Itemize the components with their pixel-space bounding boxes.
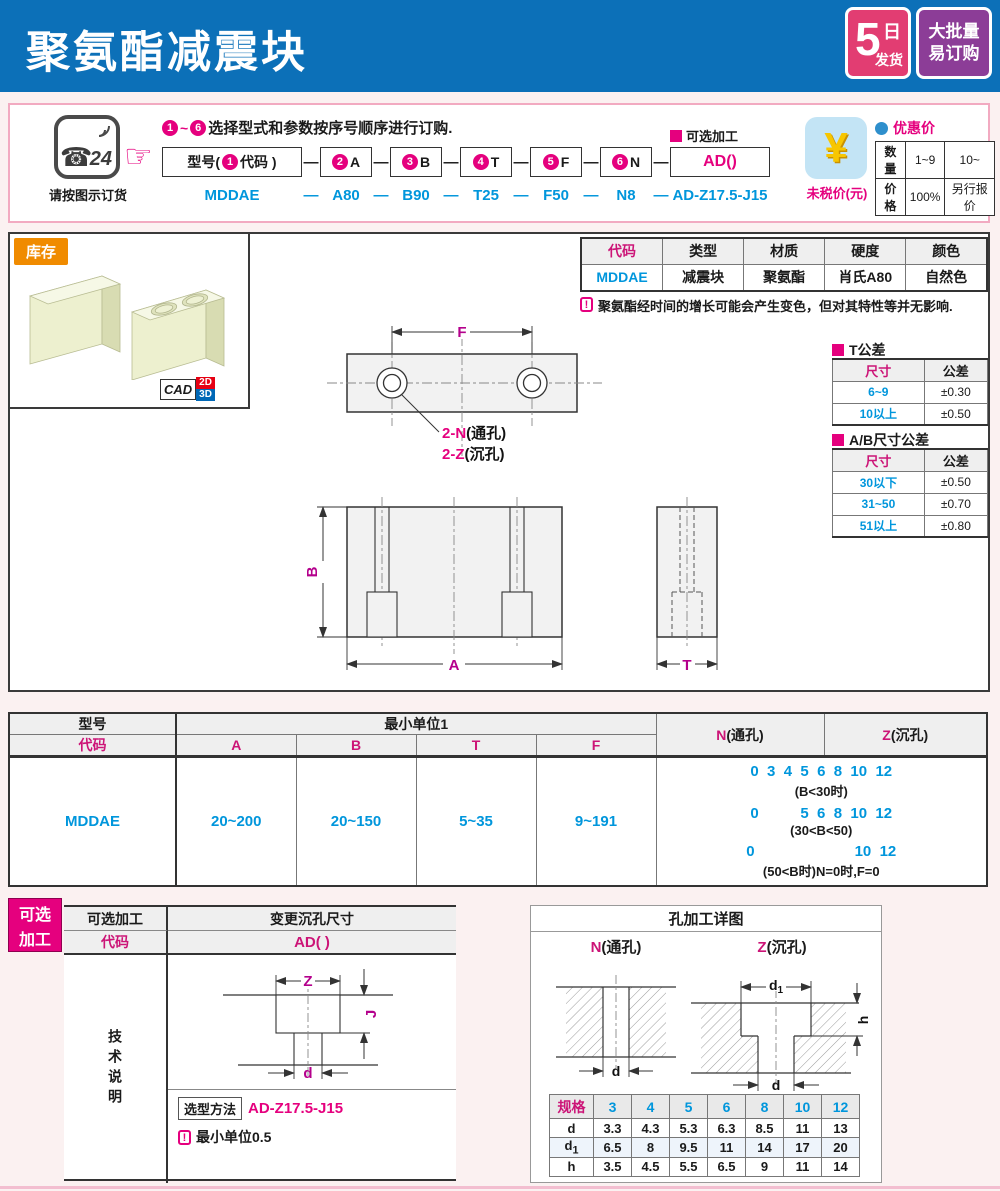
material-table: 代码 类型 材质 硬度 颜色 MDDAE 减震块 聚氨酯 肖氏A80 自然色	[580, 237, 988, 292]
circle-number-6: 6	[612, 154, 628, 170]
optional-header-right: 变更沉孔尺寸	[168, 907, 456, 931]
phone-24-label: 24	[90, 148, 112, 171]
param-box-f: 5 F	[530, 147, 582, 177]
material-note-text: 聚氨酯经时间的增长可能会产生变色，但对其特性等并无影响.	[598, 296, 953, 315]
model-number-box: 型号( 1 代码 )	[162, 147, 302, 177]
phone-24h-icon: ☎ 24	[54, 115, 120, 179]
spec-value: 5.5	[670, 1157, 708, 1176]
nz-sizes: 0 5 6 8 10 12	[657, 805, 987, 822]
tol-size-value: 30以下	[833, 471, 925, 493]
param-box-a: 2 A	[320, 147, 372, 177]
dim-a-label: A	[449, 657, 460, 674]
hole-callout-z: 2-Z(沉孔)	[442, 445, 505, 463]
header-bar: 聚氨酯减震块 5 日 发货 大批量 易订购	[0, 0, 1000, 92]
telephone-icon: ☎	[60, 142, 92, 173]
nz-condition: (B<30时)	[657, 781, 987, 800]
order-instruction-text: 选择型式和参数按序号顺序进行订购.	[208, 117, 452, 138]
example-a: A80	[320, 187, 372, 204]
row-f-range: 9~191	[536, 757, 656, 887]
spec-size: 4	[632, 1095, 670, 1119]
example-dash: —	[442, 187, 460, 204]
t-tolerance-title-text: T公差	[849, 340, 886, 360]
circle-number-2: 2	[332, 154, 348, 170]
param-label-f: F	[561, 154, 570, 170]
order-instruction: 1~6选择型式和参数按序号顺序进行订购.	[162, 117, 452, 138]
tol-header-tol: 公差	[924, 359, 987, 381]
signal-waves-icon	[95, 120, 115, 140]
example-b: B90	[390, 187, 442, 204]
material-header-code: 代码	[581, 238, 663, 264]
spec-header-label: 规格	[550, 1095, 594, 1119]
hole-detail-title: 孔加工详图	[531, 906, 881, 932]
spec-size: 5	[670, 1095, 708, 1119]
circle-number-1: 1	[162, 120, 178, 136]
spec-value: 4.3	[632, 1119, 670, 1138]
example-dash: —	[372, 187, 390, 204]
hole-diagrams: N(通孔) d	[541, 936, 873, 1101]
order-dash: —	[372, 154, 390, 171]
row-t-range: 5~35	[416, 757, 536, 887]
order-dash: —	[442, 154, 460, 171]
material-header-hardness: 硬度	[825, 238, 906, 264]
spec-value: 13	[822, 1119, 860, 1138]
spec-value: 8	[632, 1138, 670, 1158]
order-section: ☎ 24 请按图示订货 ☞ 1~6选择型式和参数按序号顺序进行订购. 型号( 1…	[8, 103, 990, 223]
tol-tol-value: ±0.50	[924, 403, 987, 425]
spec-row-d1-label: d1	[550, 1138, 594, 1158]
param-label-a: A	[350, 154, 360, 170]
example-f: F50	[530, 187, 582, 204]
param-box-n: 6 N	[600, 147, 652, 177]
blue-dot-icon	[875, 122, 888, 135]
material-note: 聚氨酯经时间的增长可能会产生变色，但对其特性等并无影响.	[580, 296, 994, 315]
delivery-ship-label: 发货	[875, 50, 903, 70]
material-color: 自然色	[906, 264, 987, 291]
spec-value: 5.3	[670, 1119, 708, 1138]
spec-size: 6	[708, 1095, 746, 1119]
product-image	[20, 260, 238, 380]
cad-badge[interactable]: CAD 2D 3D	[160, 377, 215, 401]
row-b-range: 20~150	[296, 757, 416, 887]
material-header-color: 颜色	[906, 238, 987, 264]
example-dash: —	[512, 187, 530, 204]
spec-value: 8.5	[746, 1119, 784, 1138]
dim-b-label: B	[304, 566, 321, 577]
tol-size-value: 51以上	[833, 515, 925, 537]
order-dash: —	[302, 154, 320, 171]
n-hole-label: N(通孔)	[591, 936, 642, 957]
header-model: 型号	[9, 713, 176, 735]
dim-d-label: d	[772, 1077, 781, 1093]
optional-badge-line1: 可选	[9, 904, 61, 929]
header-code: 代码	[9, 735, 176, 757]
price-table: 数量 1~9 10~ 价格 100% 另行报价	[875, 141, 995, 216]
tol-size-value: 31~50	[833, 493, 925, 515]
dim-j-label: J	[363, 1010, 380, 1018]
z-hole-diagram: d1 h d	[691, 959, 873, 1101]
bulk-badge-line2: 易订购	[929, 44, 980, 64]
param-box-t: 4 T	[460, 147, 512, 177]
spec-value: 11	[708, 1138, 746, 1158]
spec-value: 11	[784, 1119, 822, 1138]
header-a: A	[176, 735, 296, 757]
header-min-unit: 最小单位1	[176, 713, 656, 735]
order-dash: —	[652, 154, 670, 171]
cad-3d-badge[interactable]: 3D	[196, 389, 215, 401]
tol-tol-value: ±0.50	[924, 471, 987, 493]
tol-tol-value: ±0.70	[924, 493, 987, 515]
spec-row-d-label: d	[550, 1119, 594, 1138]
row-nz-values: 0 3 4 5 6 8 10 12 (B<30时) 0 5 6 8 10 12 …	[656, 757, 987, 887]
optional-header-left: 可选加工	[64, 907, 168, 931]
optional-body-cell: Z J d 选型方法 AD-Z17.5-J15 最小单位0.5	[168, 955, 456, 1183]
material-material: 聚氨酯	[744, 264, 825, 291]
dim-d-label: d	[303, 1065, 312, 1082]
selection-method-line: 选型方法 AD-Z17.5-J15	[178, 1097, 343, 1120]
material-code: MDDAE	[581, 264, 663, 291]
example-n: N8	[600, 187, 652, 204]
pink-square-icon	[832, 434, 844, 446]
nz-sizes: 0 3 4 5 6 8 10 12	[657, 763, 987, 780]
material-header-type: 类型	[663, 238, 744, 264]
spec-size: 3	[594, 1095, 632, 1119]
spec-value: 17	[784, 1138, 822, 1158]
optional-processing-wrap: 可选加工 AD()	[670, 147, 770, 177]
t-tolerance-title: T公差	[832, 340, 886, 360]
spec-row-h-label: h	[550, 1157, 594, 1176]
page-bottom-divider	[0, 1186, 1000, 1189]
top-view-drawing: F 2-N(通孔) 2-Z(沉孔)	[317, 306, 617, 478]
dim-f-label: F	[457, 324, 466, 341]
hole-callout-n: 2-N(通孔)	[442, 425, 506, 442]
order-dash: —	[512, 154, 530, 171]
min-unit-note: 最小单位0.5	[178, 1127, 271, 1147]
untaxed-price-label: 未税价(元)	[793, 183, 881, 202]
order-example-row: MDDAE — A80 — B90 — T25 — F50 — N8 — AD-…	[162, 187, 770, 204]
optional-badge-line2: 加工	[9, 929, 61, 954]
circle-number-1: 1	[222, 154, 238, 170]
order-code-boxes: 型号( 1 代码 ) — 2 A — 3 B — 4 T — 5 F — 6 N…	[162, 147, 770, 177]
price-value-1: 100%	[905, 179, 945, 216]
tol-tol-value: ±0.80	[924, 515, 987, 537]
spec-value: 14	[822, 1157, 860, 1176]
main-spec-table: 型号 最小单位1 N(通孔) Z(沉孔) 代码 A B T F MDDAE 20…	[8, 712, 988, 887]
stock-area: 库存 CAD 2D 3D	[10, 234, 250, 409]
pink-square-icon	[832, 344, 844, 356]
pink-square-icon	[670, 130, 682, 142]
page-title: 聚氨酯减震块	[26, 16, 308, 80]
optional-processing-text: 可选加工	[686, 126, 738, 145]
header-f: F	[536, 735, 656, 757]
ad-code: AD()	[703, 153, 737, 171]
spec-value: 6.5	[708, 1157, 746, 1176]
product-drawing-section: 库存 CAD 2D 3D 代码	[8, 232, 990, 692]
n-hole-diagram: d	[551, 959, 681, 1089]
tol-tol-value: ±0.30	[924, 381, 987, 403]
spec-value: 6.3	[708, 1119, 746, 1138]
cad-2d-badge[interactable]: 2D	[196, 377, 215, 389]
qty-range-1: 1~9	[905, 142, 945, 179]
selection-method-value: AD-Z17.5-J15	[248, 1100, 343, 1117]
header-badges: 5 日 发货 大批量 易订购	[845, 7, 992, 79]
dim-z-label: Z	[303, 973, 312, 990]
circle-number-3: 3	[402, 154, 418, 170]
t-tolerance-table: 尺寸 公差 6~9 ±0.30 10以上 ±0.50	[832, 358, 988, 426]
divider	[168, 1089, 456, 1090]
cad-label[interactable]: CAD	[160, 379, 196, 400]
row-code: MDDAE	[9, 757, 176, 887]
discount-price-area: 优惠价 数量 1~9 10~ 价格 100% 另行报价	[875, 118, 995, 216]
price-value-2: 另行报价	[945, 179, 995, 216]
counterbore-diagram: Z J d	[208, 963, 408, 1085]
tilde: ~	[180, 120, 188, 136]
circle-number-4: 4	[473, 154, 489, 170]
spec-value: 9	[746, 1157, 784, 1176]
spec-value: 3.5	[594, 1157, 632, 1176]
param-label-b: B	[420, 154, 430, 170]
spec-size: 8	[746, 1095, 784, 1119]
ab-tolerance-title-text: A/B尺寸公差	[849, 430, 929, 450]
example-model: MDDAE	[162, 187, 302, 204]
dim-h-label: h	[855, 1016, 871, 1025]
optional-processing-label: 可选加工	[670, 126, 800, 145]
spec-value: 4.5	[632, 1157, 670, 1176]
material-type: 减震块	[663, 264, 744, 291]
model-box-suffix: 代码 )	[240, 152, 277, 172]
param-label-t: T	[491, 154, 500, 170]
pointing-hand-icon: ☞	[124, 137, 153, 175]
param-box-b: 3 B	[390, 147, 442, 177]
price-label: 价格	[876, 179, 906, 216]
spec-value: 6.5	[594, 1138, 632, 1158]
min-unit-text: 最小单位0.5	[196, 1127, 271, 1147]
param-label-n: N	[630, 154, 640, 170]
qty-range-2: 10~	[945, 142, 995, 179]
nz-condition: (30<B<50)	[657, 823, 987, 838]
dim-d-label: d	[612, 1063, 621, 1079]
ab-tolerance-table: 尺寸 公差 30以下 ±0.50 31~50 ±0.70 51以上 ±0.80	[832, 448, 988, 538]
hole-spec-table: 规格 3 4 5 6 8 10 12 d 3.3 4.3 5.3 6.3 8.5…	[549, 1094, 860, 1177]
qty-label: 数量	[876, 142, 906, 179]
optional-processing-table: 可选加工 变更沉孔尺寸 代码 AD( ) 技术说明 Z J	[64, 905, 456, 1181]
model-box-prefix: 型号(	[187, 152, 220, 172]
material-hardness: 肖氏A80	[825, 264, 906, 291]
optional-code-value: AD( )	[168, 931, 456, 955]
nz-sizes: 0 10 12	[657, 843, 987, 860]
tol-header-size: 尺寸	[833, 449, 925, 471]
example-ad: AD-Z17.5-J15	[670, 187, 770, 204]
z-hole-label: Z(沉孔)	[757, 936, 806, 957]
order-dash: —	[582, 154, 600, 171]
spec-size: 10	[784, 1095, 822, 1119]
selection-method-label: 选型方法	[178, 1097, 242, 1120]
bulk-order-badge: 大批量 易订购	[916, 7, 992, 79]
nz-condition: (50<B时)N=0时,F=0	[657, 861, 987, 880]
example-dash: —	[302, 187, 320, 204]
optional-section-badge: 可选 加工	[8, 898, 62, 952]
delivery-days-unit: 日	[883, 18, 901, 44]
hole-detail-box: 孔加工详图 N(通孔)	[530, 905, 882, 1183]
material-header-material: 材质	[744, 238, 825, 264]
circle-number-5: 5	[543, 154, 559, 170]
spec-value: 11	[784, 1157, 822, 1176]
circle-number-6: 6	[190, 120, 206, 136]
optional-code-label: 代码	[64, 931, 168, 955]
row-a-range: 20~200	[176, 757, 296, 887]
spec-value: 20	[822, 1138, 860, 1158]
spec-value: 14	[746, 1138, 784, 1158]
spec-value: 9.5	[670, 1138, 708, 1158]
example-dash: —	[652, 187, 670, 204]
tech-note-label: 技术说明	[105, 1029, 125, 1109]
discount-price-label: 优惠价	[893, 118, 935, 138]
ab-tolerance-title: A/B尺寸公差	[832, 430, 929, 450]
tol-size-value: 6~9	[833, 381, 925, 403]
delivery-badge: 5 日 发货	[845, 7, 911, 79]
header-b: B	[296, 735, 416, 757]
phone-caption: 请按图示订货	[38, 185, 138, 204]
tech-note-cell: 技术说明	[64, 955, 168, 1183]
header-z-hole: Z(沉孔)	[824, 713, 987, 757]
dim-t-label: T	[682, 657, 691, 674]
tol-header-size: 尺寸	[833, 359, 925, 381]
optional-processing-box: AD()	[670, 147, 770, 177]
example-dash: —	[582, 187, 600, 204]
bulk-badge-line1: 大批量	[929, 22, 980, 42]
header-t: T	[416, 735, 536, 757]
tol-size-value: 10以上	[833, 403, 925, 425]
spec-size: 12	[822, 1095, 860, 1119]
front-side-view-drawing: B A T	[287, 492, 747, 688]
example-t: T25	[460, 187, 512, 204]
price-block: ¥ 未税价(元) 优惠价 数量 1~9 10~ 价格 100% 另行报价	[805, 115, 995, 215]
header-n-hole: N(通孔)	[656, 713, 824, 757]
tol-header-tol: 公差	[924, 449, 987, 471]
spec-value: 3.3	[594, 1119, 632, 1138]
note-icon	[178, 1130, 191, 1145]
yen-icon: ¥	[805, 117, 867, 179]
